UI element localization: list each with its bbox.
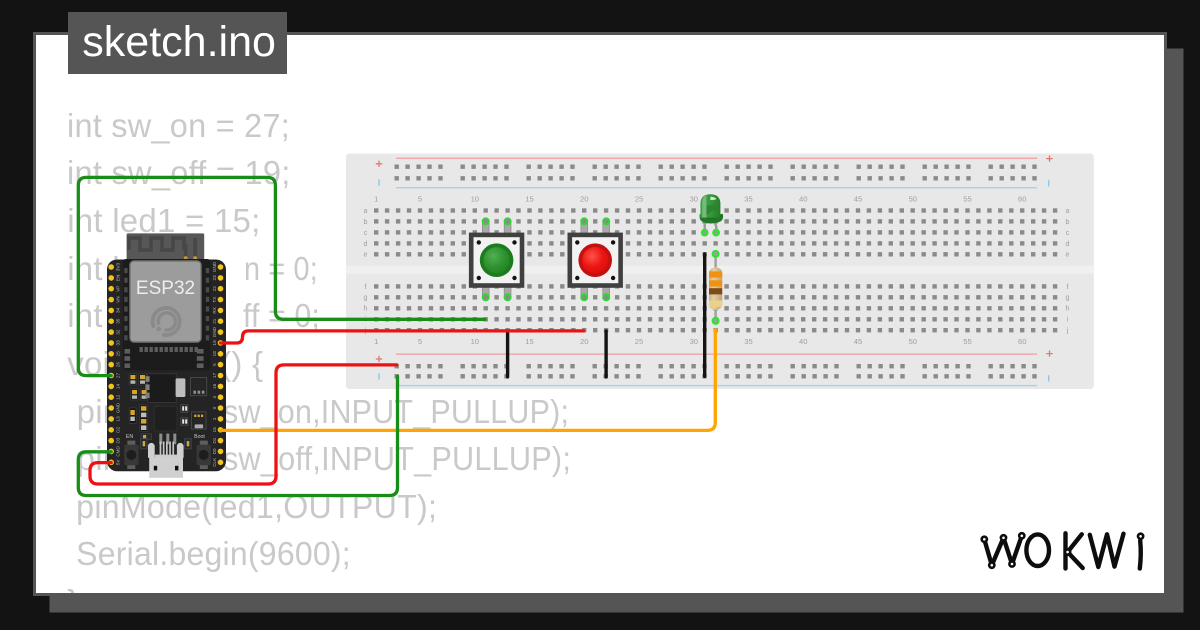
svg-text:27: 27 xyxy=(115,373,120,379)
svg-text:TX: TX xyxy=(212,297,217,303)
svg-text:5V: 5V xyxy=(115,459,120,466)
svg-text:b: b xyxy=(1066,219,1070,226)
svg-text:14: 14 xyxy=(115,383,120,389)
svg-text:40: 40 xyxy=(799,337,807,346)
svg-text:GND: GND xyxy=(115,402,120,413)
svg-text:23: 23 xyxy=(212,275,217,281)
svg-text:h: h xyxy=(1066,306,1070,313)
svg-text:EN: EN xyxy=(126,434,133,440)
svg-text:30: 30 xyxy=(690,195,698,204)
svg-text:12: 12 xyxy=(115,394,120,400)
svg-text:35: 35 xyxy=(744,337,752,346)
svg-text:34: 34 xyxy=(115,307,120,313)
svg-text:RX: RX xyxy=(212,307,217,313)
svg-text:10: 10 xyxy=(471,195,479,204)
svg-text:D2: D2 xyxy=(115,426,120,432)
svg-text:25: 25 xyxy=(635,195,643,204)
svg-text:5: 5 xyxy=(418,195,422,204)
svg-text:50: 50 xyxy=(909,195,917,204)
svg-text:35: 35 xyxy=(744,195,752,204)
svg-text:d: d xyxy=(364,241,368,248)
svg-text:c: c xyxy=(364,230,368,237)
svg-text:20: 20 xyxy=(580,195,588,204)
svg-text:VN: VN xyxy=(115,296,120,302)
svg-text:18: 18 xyxy=(212,351,217,357)
svg-text:GND: GND xyxy=(212,261,217,272)
svg-text:2: 2 xyxy=(212,417,217,420)
svg-text:45: 45 xyxy=(854,195,862,204)
svg-text:55: 55 xyxy=(963,195,971,204)
svg-text:60: 60 xyxy=(1018,337,1026,346)
svg-text:D0: D0 xyxy=(212,448,217,454)
svg-text:32: 32 xyxy=(115,329,120,335)
svg-text:55: 55 xyxy=(963,337,971,346)
svg-text:c: c xyxy=(1066,230,1070,237)
svg-text:20: 20 xyxy=(580,337,588,346)
svg-text:5: 5 xyxy=(418,337,422,346)
svg-text:22: 22 xyxy=(212,286,217,292)
svg-text:15: 15 xyxy=(525,195,533,204)
svg-text:3V3: 3V3 xyxy=(115,262,120,271)
svg-text:30: 30 xyxy=(690,337,698,346)
svg-text:33: 33 xyxy=(115,340,120,346)
svg-text:10: 10 xyxy=(471,337,479,346)
svg-text:35: 35 xyxy=(115,318,120,324)
svg-text:40: 40 xyxy=(799,195,807,204)
svg-text:1: 1 xyxy=(374,195,378,204)
svg-text:13: 13 xyxy=(115,416,120,422)
svg-text:f: f xyxy=(1067,284,1069,291)
svg-text:f: f xyxy=(365,284,367,291)
svg-text:26: 26 xyxy=(115,362,120,368)
svg-text:25: 25 xyxy=(115,351,120,357)
svg-text:ESP32: ESP32 xyxy=(136,278,195,299)
svg-text:16: 16 xyxy=(212,383,217,389)
svg-text:D1: D1 xyxy=(212,437,217,443)
svg-text:4: 4 xyxy=(212,395,217,398)
svg-text:0: 0 xyxy=(212,406,217,409)
svg-text:e: e xyxy=(1066,252,1070,259)
svg-text:25: 25 xyxy=(635,337,643,346)
svg-text:g: g xyxy=(1066,295,1070,302)
svg-text:GND: GND xyxy=(212,326,217,337)
svg-text:j: j xyxy=(1066,328,1069,335)
svg-text:h: h xyxy=(364,306,368,313)
svg-text:d: d xyxy=(1066,241,1070,248)
svg-text:15: 15 xyxy=(212,427,217,433)
svg-text:CMD: CMD xyxy=(115,445,120,456)
svg-text:e: e xyxy=(364,252,368,259)
svg-text:D3: D3 xyxy=(115,437,120,443)
svg-text:1: 1 xyxy=(374,337,378,346)
svg-text:a: a xyxy=(364,208,368,215)
svg-text:50: 50 xyxy=(909,337,917,346)
svg-text:EN: EN xyxy=(115,275,120,281)
svg-text:a: a xyxy=(1066,208,1070,215)
svg-text:60: 60 xyxy=(1018,195,1026,204)
svg-text:VP: VP xyxy=(115,286,120,292)
svg-text:19: 19 xyxy=(212,340,217,346)
svg-text:17: 17 xyxy=(212,373,217,379)
svg-text:21: 21 xyxy=(212,318,217,324)
svg-text:15: 15 xyxy=(525,337,533,346)
svg-text:5: 5 xyxy=(212,363,217,366)
svg-text:CLK: CLK xyxy=(212,457,217,467)
svg-text:Boot: Boot xyxy=(194,434,205,440)
svg-text:45: 45 xyxy=(854,337,862,346)
svg-text:g: g xyxy=(364,295,368,302)
svg-text:b: b xyxy=(364,219,368,226)
